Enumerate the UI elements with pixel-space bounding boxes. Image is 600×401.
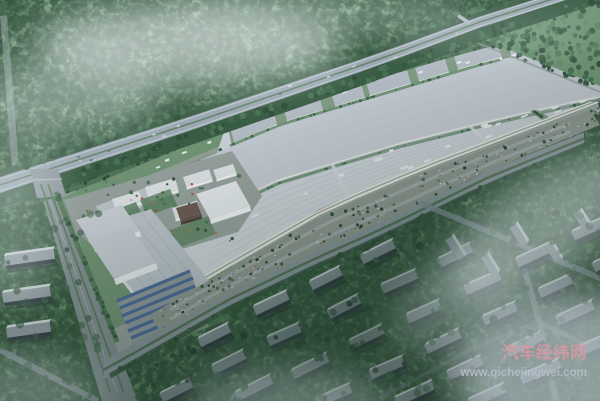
- svg-text:汽车经纬网: 汽车经纬网: [502, 342, 587, 362]
- svg-text:www.qichejingwei.com: www.qichejingwei.com: [460, 366, 587, 379]
